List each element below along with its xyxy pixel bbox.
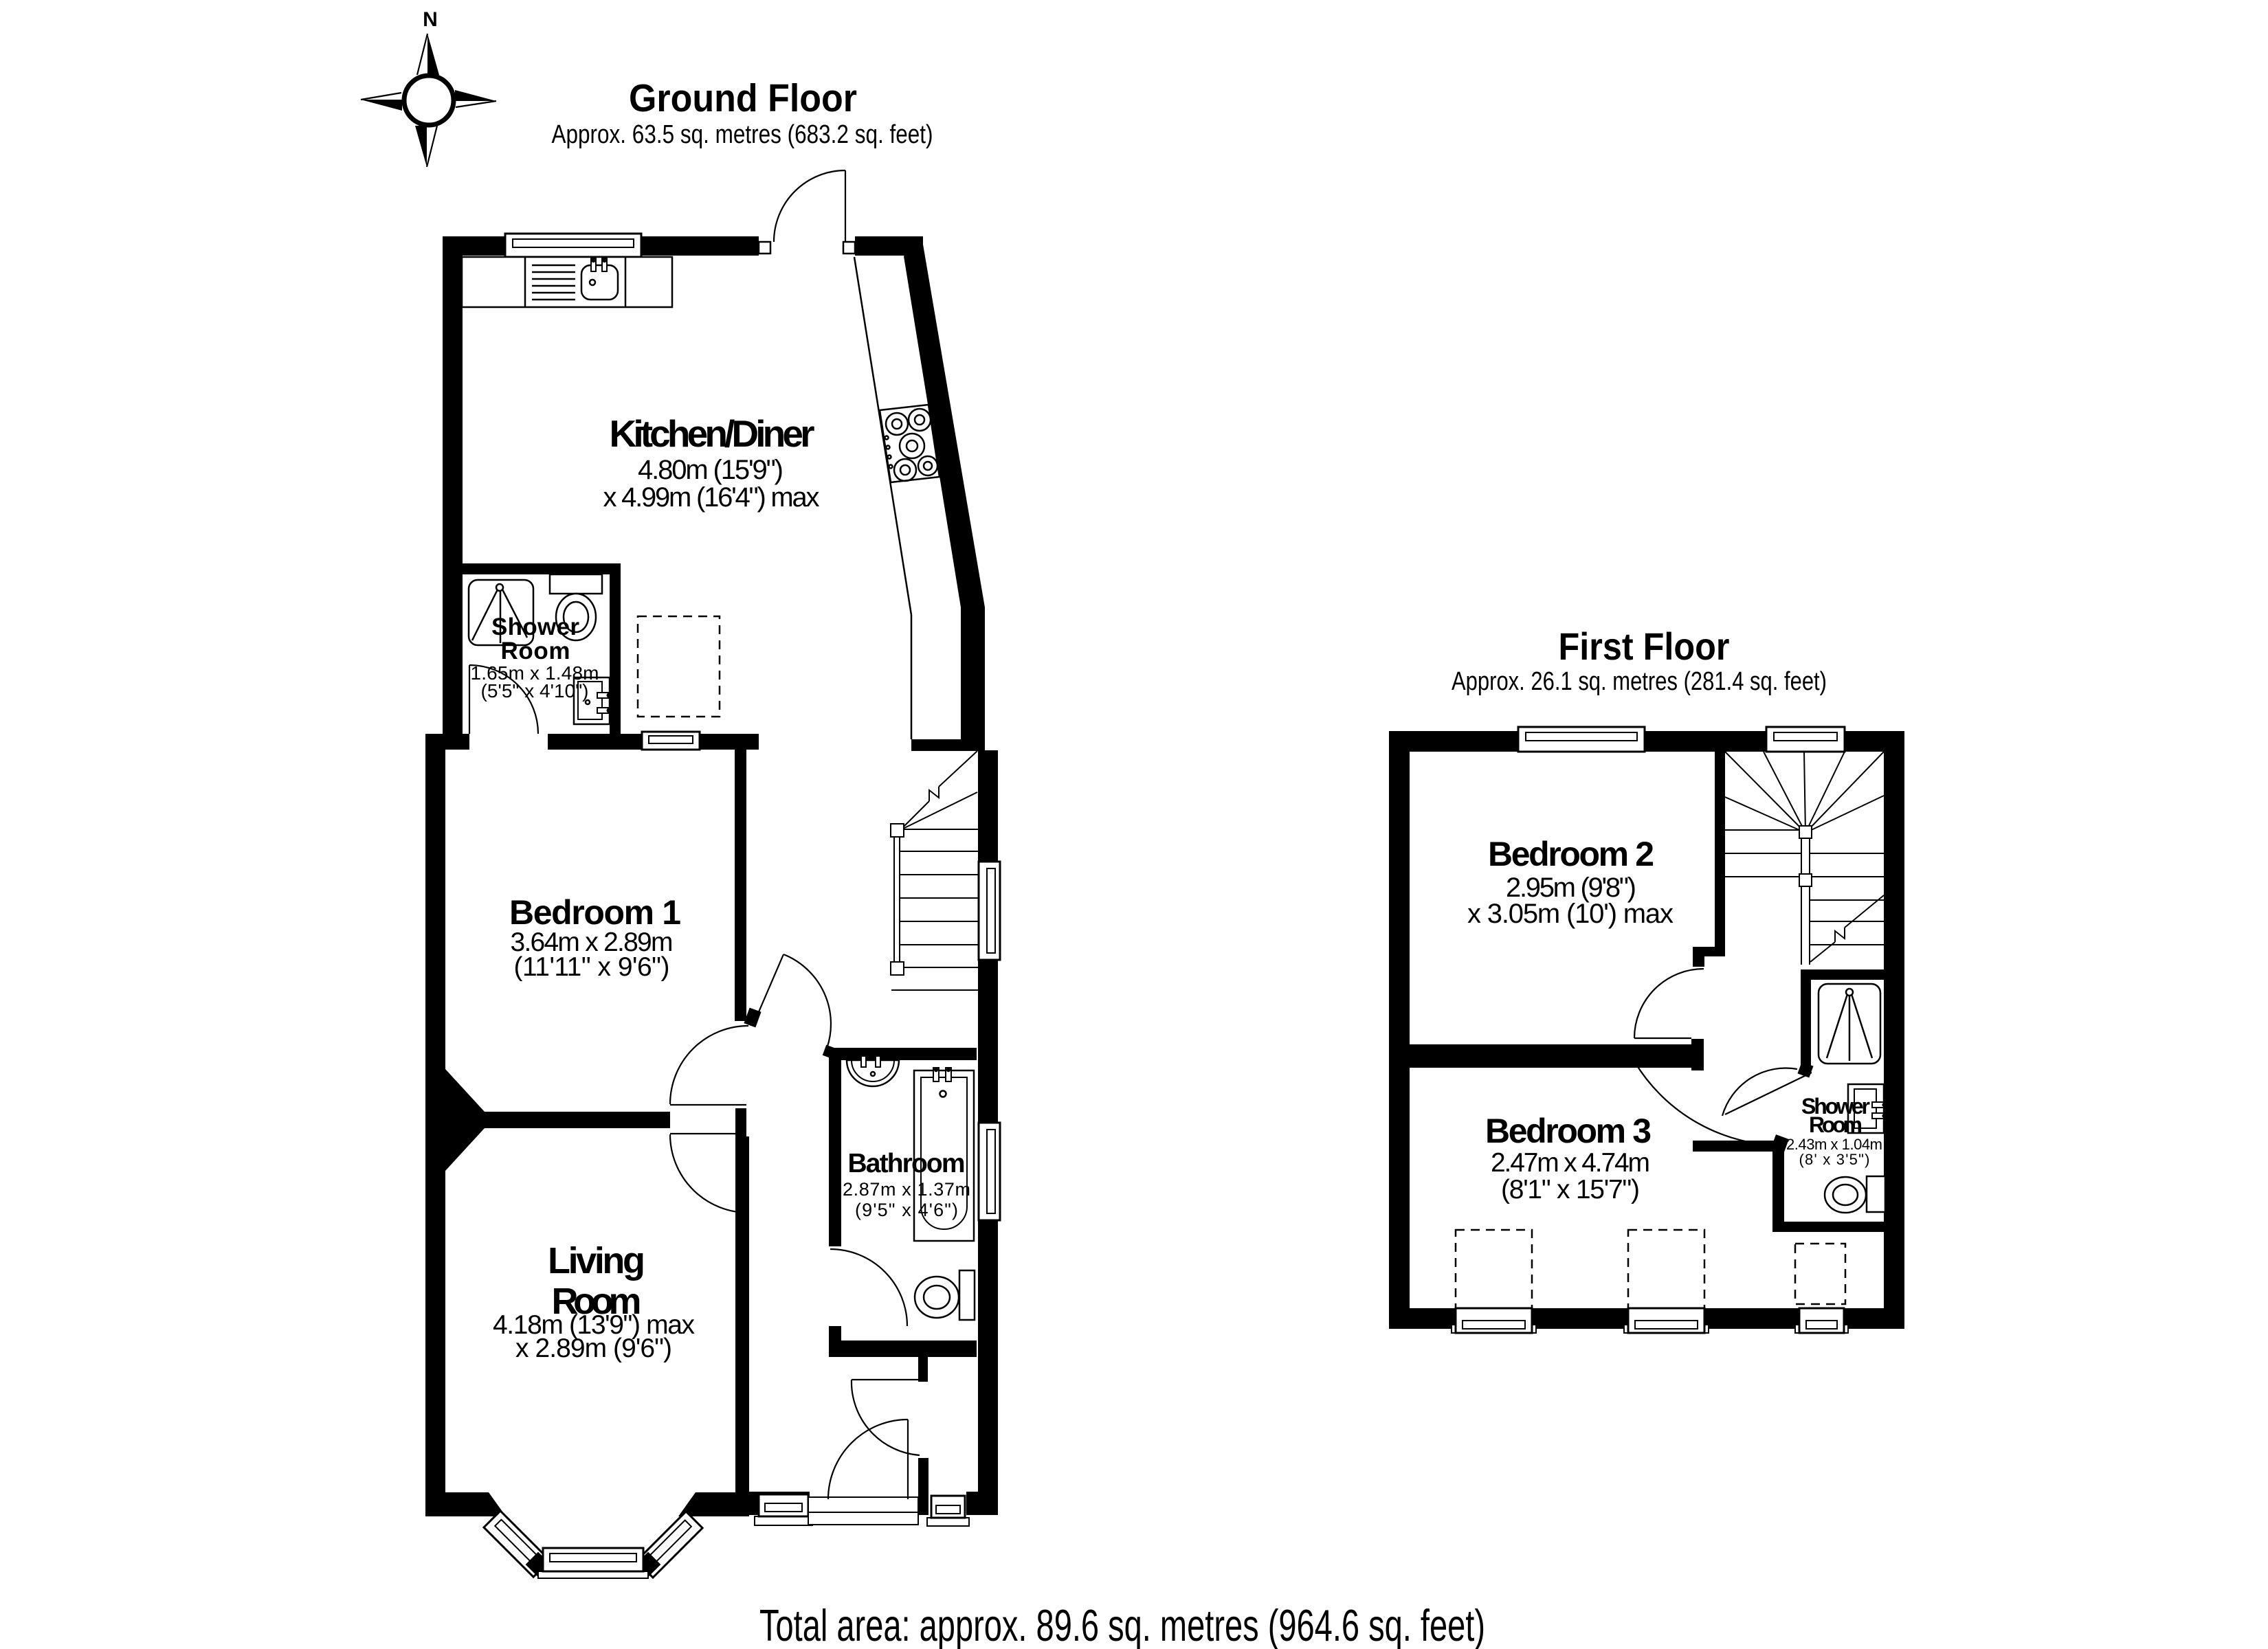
svg-text:Bedroom 1: Bedroom 1 <box>509 893 681 932</box>
svg-text:Living: Living <box>548 1240 645 1281</box>
svg-text:(5'5" x 4'10"): (5'5" x 4'10") <box>481 680 589 702</box>
svg-text:Kitchen/Diner: Kitchen/Diner <box>610 412 815 455</box>
svg-text:Room: Room <box>1809 1112 1863 1137</box>
svg-text:Bedroom 3: Bedroom 3 <box>1485 1112 1652 1150</box>
svg-text:x 3.05m (10') max: x 3.05m (10') max <box>1467 899 1674 929</box>
svg-text:Shower: Shower <box>491 614 579 640</box>
svg-text:(9'5" x 4'6"): (9'5" x 4'6") <box>855 1200 958 1220</box>
svg-text:x 2.89m (9'6"): x 2.89m (9'6") <box>515 1334 672 1363</box>
svg-text:Bathroom: Bathroom <box>848 1149 966 1178</box>
svg-text:(8'1" x 15'7"): (8'1" x 15'7") <box>1501 1175 1640 1204</box>
svg-text:4.80m (15'9"): 4.80m (15'9") <box>638 455 783 485</box>
svg-text:2.47m x 4.74m: 2.47m x 4.74m <box>1491 1148 1650 1178</box>
svg-text:Approx. 26.1 sq. metres (281.4: Approx. 26.1 sq. metres (281.4 sq. feet) <box>1452 667 1827 696</box>
svg-text:Approx. 63.5 sq. metres (683.2: Approx. 63.5 sq. metres (683.2 sq. feet) <box>552 120 933 149</box>
svg-text:First Floor: First Floor <box>1559 625 1730 668</box>
svg-text:2.87m x 1.37m: 2.87m x 1.37m <box>843 1179 970 1200</box>
svg-text:Bedroom 2: Bedroom 2 <box>1488 835 1654 873</box>
svg-text:N: N <box>423 8 438 31</box>
svg-text:x 4.99m (16'4") max: x 4.99m (16'4") max <box>603 482 820 513</box>
svg-text:(11'11" x 9'6"): (11'11" x 9'6") <box>514 952 670 982</box>
svg-text:Room: Room <box>501 638 570 664</box>
svg-text:Ground Floor: Ground Floor <box>629 76 857 120</box>
svg-text:Total area: approx. 89.6 sq. m: Total area: approx. 89.6 sq. metres (964… <box>759 1600 1485 1649</box>
svg-text:(8' x 3'5"): (8' x 3'5") <box>1799 1151 1870 1168</box>
